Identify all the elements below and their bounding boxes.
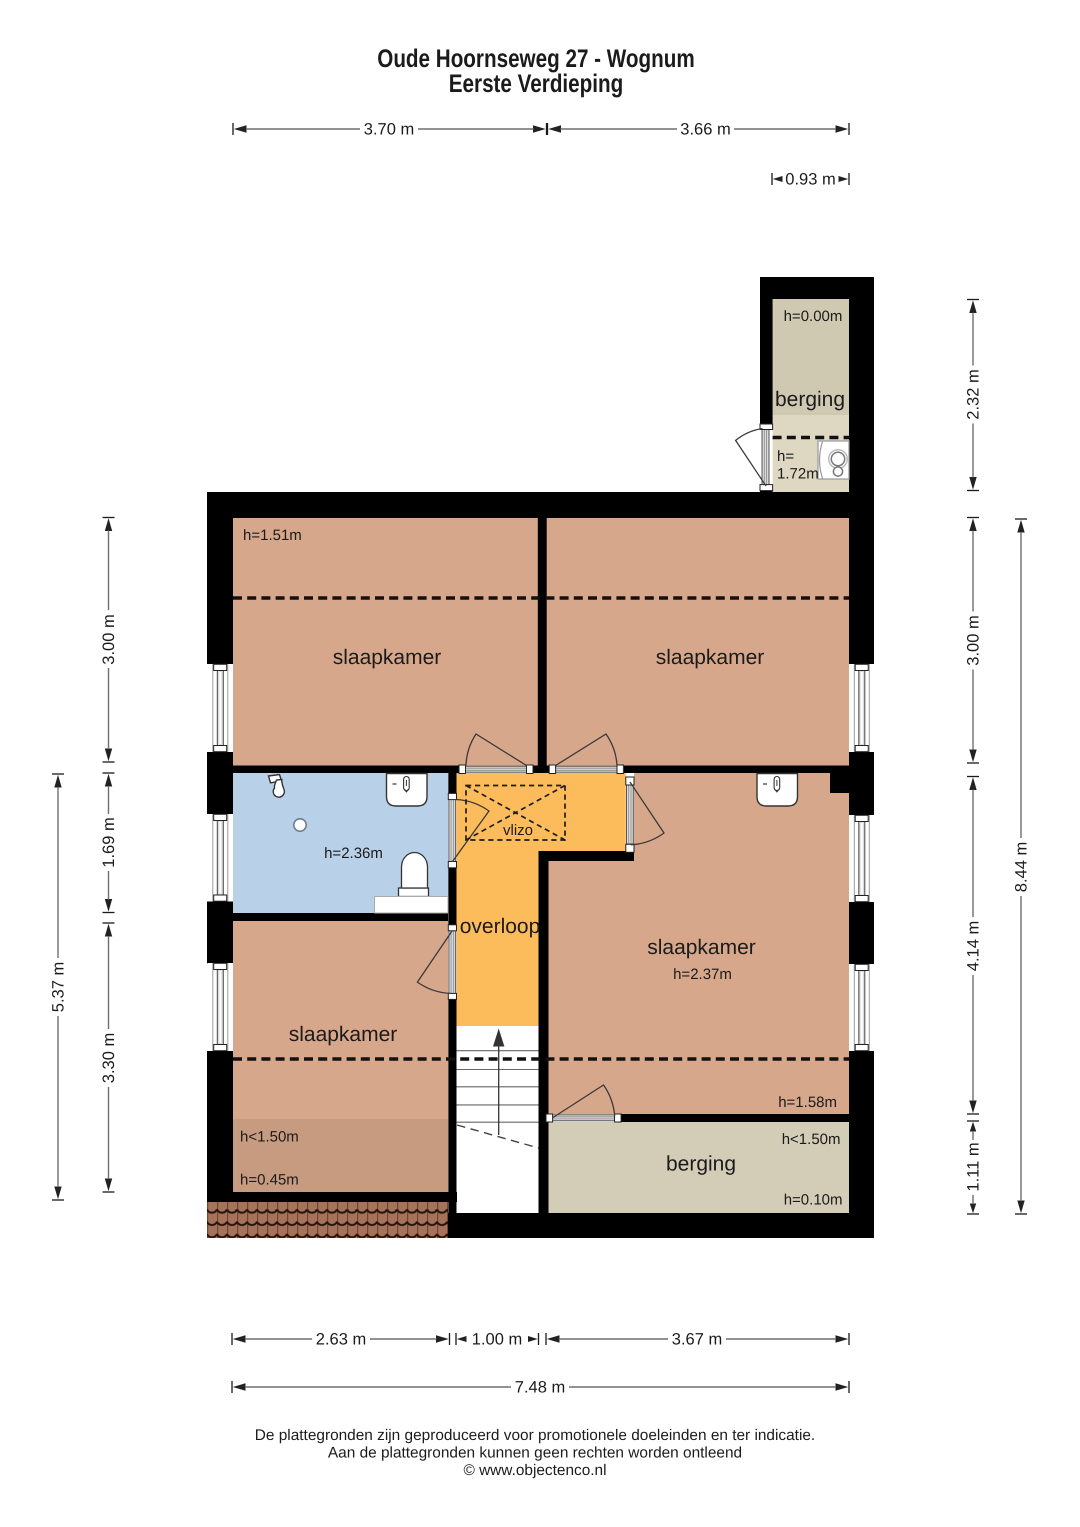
svg-text:1.11 m: 1.11 m	[965, 1142, 983, 1191]
svg-text:3.70 m: 3.70 m	[364, 121, 414, 139]
svg-text:h=0.10m: h=0.10m	[784, 1192, 843, 1209]
svg-text:3.66 m: 3.66 m	[680, 121, 730, 139]
svg-text:h<1.50m: h<1.50m	[782, 1131, 841, 1148]
svg-text:3.00 m: 3.00 m	[100, 614, 118, 664]
svg-text:© www.objectenco.nl: © www.objectenco.nl	[463, 1462, 606, 1479]
svg-text:h=2.36m: h=2.36m	[324, 845, 383, 862]
svg-text:2.32 m: 2.32 m	[965, 369, 983, 419]
svg-text:Eerste Verdieping: Eerste Verdieping	[449, 70, 623, 98]
svg-text:Oude Hoornseweg 27 - Wognum: Oude Hoornseweg 27 - Wognum	[377, 45, 695, 73]
svg-text:h=0.00m: h=0.00m	[784, 308, 843, 325]
svg-text:De plattegronden zijn geproduc: De plattegronden zijn geproduceerd voor …	[255, 1427, 815, 1444]
svg-text:5.37 m: 5.37 m	[50, 962, 68, 1012]
svg-text:slaapkamer: slaapkamer	[656, 646, 765, 669]
svg-text:7.48 m: 7.48 m	[515, 1379, 565, 1397]
svg-text:1.00 m: 1.00 m	[472, 1331, 522, 1349]
svg-text:0.93 m: 0.93 m	[785, 171, 835, 189]
svg-text:h=0.45m: h=0.45m	[240, 1172, 299, 1189]
svg-text:3.30 m: 3.30 m	[100, 1033, 118, 1083]
svg-text:3.00 m: 3.00 m	[965, 615, 983, 665]
svg-text:h=2.37m: h=2.37m	[673, 966, 732, 983]
svg-text:slaapkamer: slaapkamer	[647, 936, 756, 959]
svg-text:h=1.58m: h=1.58m	[778, 1094, 837, 1111]
svg-text:slaapkamer: slaapkamer	[333, 646, 442, 669]
svg-text:2.63 m: 2.63 m	[316, 1331, 366, 1349]
svg-text:1.72m: 1.72m	[777, 466, 819, 483]
svg-text:h=: h=	[777, 448, 794, 465]
svg-text:overloop: overloop	[460, 915, 541, 938]
svg-text:h<1.50m: h<1.50m	[240, 1129, 299, 1146]
svg-text:3.67 m: 3.67 m	[672, 1331, 722, 1349]
svg-text:4.14 m: 4.14 m	[965, 921, 983, 971]
svg-text:berging: berging	[666, 1153, 736, 1176]
svg-text:berging: berging	[775, 388, 845, 411]
svg-text:8.44 m: 8.44 m	[1013, 842, 1031, 892]
svg-text:vlizo: vlizo	[503, 822, 533, 839]
svg-text:slaapkamer: slaapkamer	[289, 1023, 398, 1046]
svg-text:h=1.51m: h=1.51m	[243, 527, 302, 544]
svg-text:Aan de plattegronden kunnen ge: Aan de plattegronden kunnen geen rechten…	[328, 1445, 742, 1462]
svg-text:1.69 m: 1.69 m	[100, 817, 118, 867]
